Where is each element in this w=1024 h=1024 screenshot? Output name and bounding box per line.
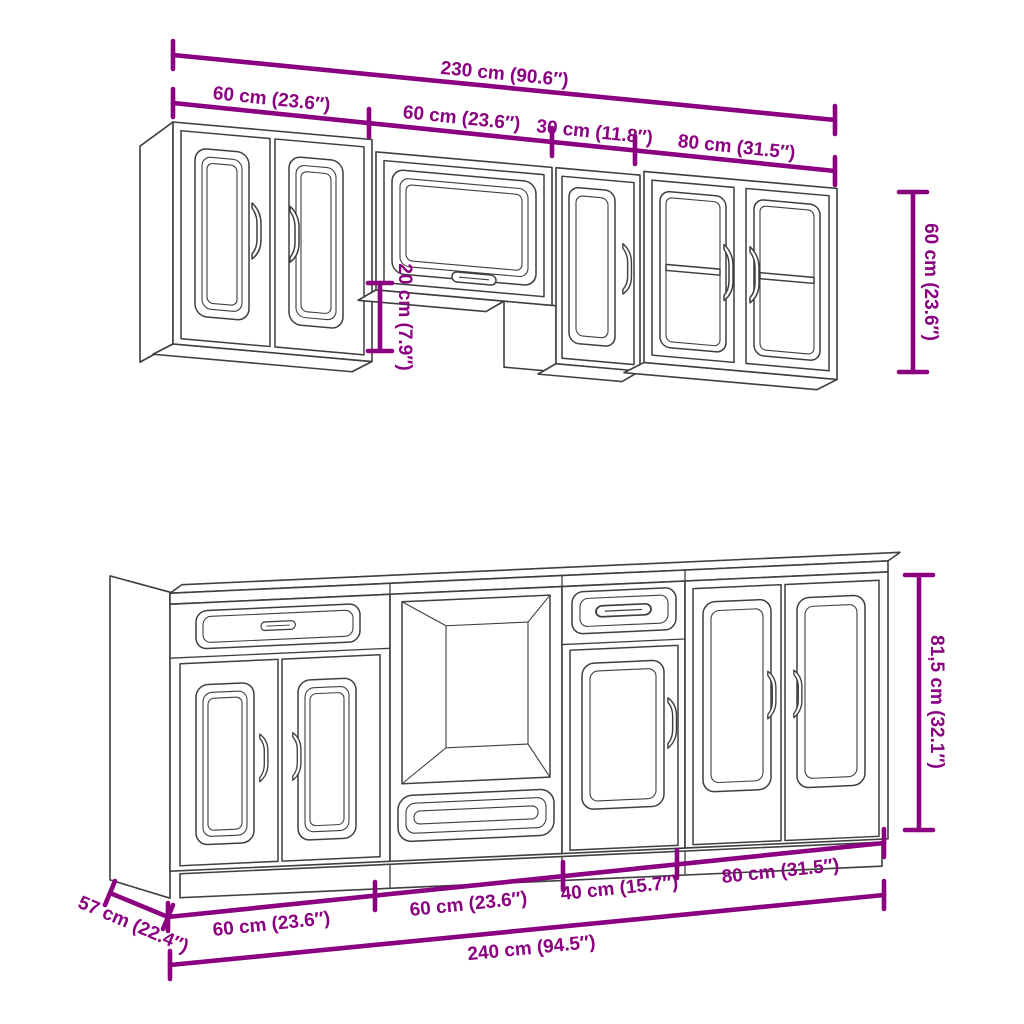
cabinet-side-panel: [140, 119, 173, 365]
wall-cabinet-60-double: [140, 119, 372, 382]
dim-label: 240 cm (94.5″): [467, 932, 597, 965]
dim-label: 60 cm (23.6″): [212, 908, 331, 941]
base-cabinet-40-drawer-single: [562, 581, 685, 854]
base-cabinet-60-oven-cavity: [390, 587, 562, 862]
base-side-panel: [110, 573, 170, 901]
door-panel-frame: [703, 599, 771, 792]
door-glass-frame: [195, 148, 249, 321]
wall-cabinet-row: [140, 119, 837, 423]
diagram-canvas: 230 cm (90.6″) 60 cm (23.6″) 60 cm (23.6…: [0, 0, 1024, 1024]
door-panel-frame: [797, 595, 865, 788]
base-cabinet-80-double: [685, 572, 888, 848]
bottom-drawer-front: [398, 789, 554, 842]
wall-cabinet-60-over-range: [358, 150, 556, 371]
door-panel-frame: [298, 678, 356, 841]
dim-lower-height: 81,5 cm (32.1″): [905, 575, 947, 830]
dim-label: 81,5 cm (32.1″): [926, 635, 947, 769]
dim-label: 20 cm (7.9″): [394, 263, 415, 370]
drawer-handle: [261, 621, 295, 631]
door-panel-frame: [196, 682, 254, 845]
kitchen-cabinet-dimension-diagram: 230 cm (90.6″) 60 cm (23.6″) 60 cm (23.6…: [0, 0, 1024, 1024]
wall-cabinet-80-double: [624, 170, 837, 392]
base-cabinet-row: [110, 540, 900, 901]
door-glass-frame: [582, 660, 664, 810]
drawer-handle: [596, 604, 651, 617]
dim-upper-height: 60 cm (23.6″): [899, 192, 941, 372]
dim-label: 60 cm (23.6″): [409, 888, 528, 921]
base-cabinet-60-drawer-double: [170, 594, 390, 871]
dim-lower-depth: 57 cm (22.4″): [75, 881, 192, 958]
dim-label: 60 cm (23.6″): [920, 223, 941, 341]
adjacent-side-panel: [504, 301, 556, 372]
